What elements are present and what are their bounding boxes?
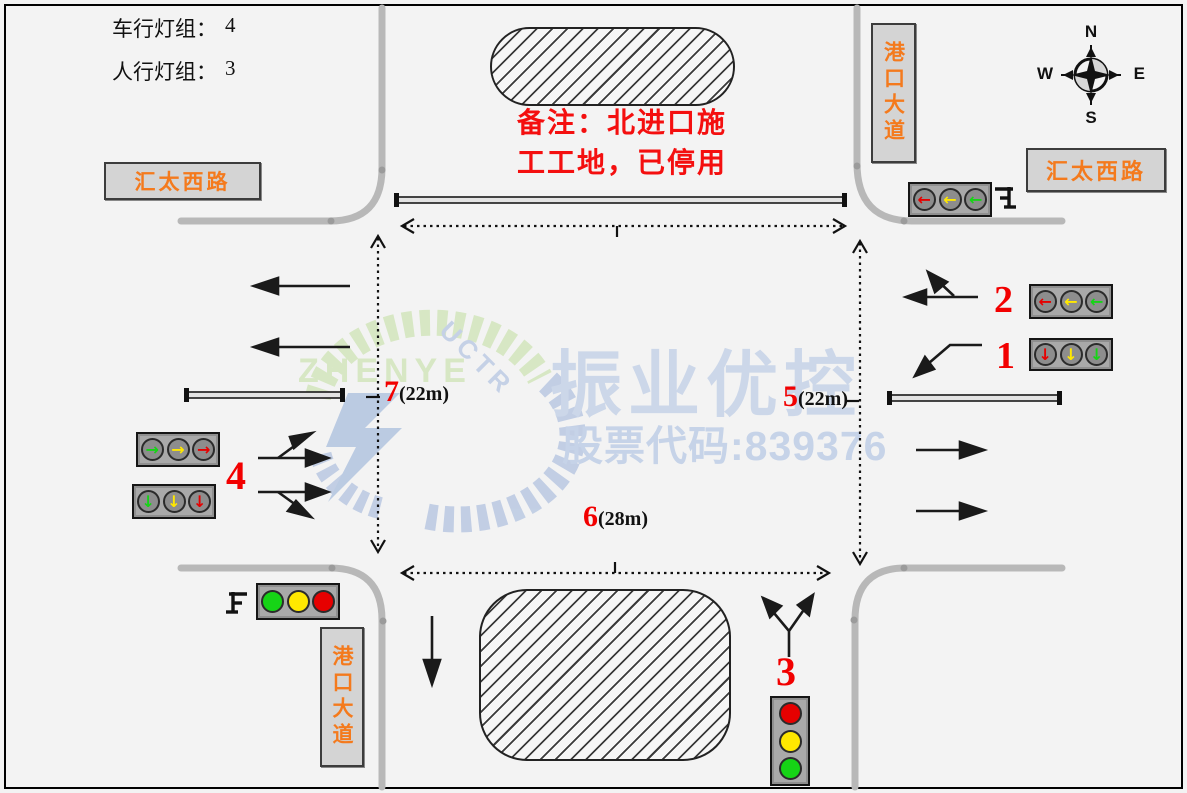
traffic-light-east-approach: ←←←	[908, 182, 992, 217]
north-construction-zone	[490, 27, 735, 106]
red-lamp	[779, 702, 802, 725]
compass-north-label: N	[1035, 22, 1147, 42]
red-lamp: ←	[913, 188, 936, 211]
red-lamp	[312, 590, 335, 613]
measure-5-dimension: (22m)	[798, 389, 848, 409]
road-label-south: 港口大道	[320, 627, 364, 767]
traffic-light-4-horizontal: →→→	[136, 432, 220, 467]
stop-line-east	[890, 395, 1060, 401]
signal-number-3: 3	[776, 648, 796, 695]
intersection-diagram: ZHENYE UCTR 振业优控 股票代码:839376	[0, 0, 1187, 793]
road-label-east: 汇太西路	[1026, 148, 1166, 192]
vehicle-light-groups-value: 4	[225, 13, 236, 43]
pedestrian-light-groups-value: 3	[225, 56, 236, 86]
note-line-2: 工工地，已停用	[452, 144, 792, 184]
green-lamp: ←	[1085, 290, 1108, 313]
green-lamp: ↓	[1085, 343, 1108, 366]
yellow-lamp	[287, 590, 310, 613]
road-label-west: 汇太西路	[104, 162, 261, 200]
yellow-lamp: ↓	[163, 490, 186, 513]
westbound-exit-arrows	[254, 278, 350, 355]
signal-pole-icon-east	[992, 183, 1018, 211]
yellow-lamp: ←	[939, 188, 962, 211]
traffic-light-south-west	[256, 583, 340, 620]
compass-rose: N S W E	[1035, 22, 1147, 128]
curb-southeast	[855, 568, 1062, 787]
vehicle-light-groups-label: 车行灯组：	[112, 13, 217, 43]
stop-line-west	[187, 392, 343, 398]
green-lamp: ↓	[137, 490, 160, 513]
measure-7-number: 7	[384, 377, 399, 407]
vehicle-light-groups-stat: 车行灯组： 4	[112, 13, 236, 43]
stop-line-north	[397, 197, 845, 203]
signal4-through-down-arrow	[258, 484, 328, 517]
green-lamp	[261, 590, 284, 613]
yellow-lamp: ←	[1060, 290, 1083, 313]
note-line-1: 备注：北进口施	[452, 104, 792, 144]
measure-5-number: 5	[783, 382, 798, 412]
yellow-lamp	[779, 730, 802, 753]
yellow-lamp: →	[167, 438, 190, 461]
construction-note: 备注：北进口施 工工地，已停用	[452, 104, 792, 184]
pedestrian-light-groups-stat: 人行灯组： 3	[112, 56, 236, 86]
measure-7-dimension: (22m)	[399, 384, 449, 404]
traffic-light-2: ←←←	[1029, 284, 1113, 319]
red-lamp: ↓	[1034, 343, 1057, 366]
signal-number-4: 4	[226, 452, 246, 499]
pedestrian-light-groups-label: 人行灯组：	[112, 56, 217, 86]
signal4-through-right-arrow	[258, 433, 328, 466]
red-lamp: →	[192, 438, 215, 461]
green-lamp: ←	[964, 188, 987, 211]
stop-lines	[184, 193, 1062, 405]
signal2-movement-arrow	[906, 272, 978, 304]
road-label-north: 港口大道	[871, 23, 916, 163]
compass-star-icon	[1059, 43, 1123, 107]
traffic-light-1: ↓↓↓	[1029, 338, 1113, 371]
red-lamp: ←	[1034, 290, 1057, 313]
signal1-movement-arrow	[915, 345, 982, 376]
signal-pole-icon-south	[224, 588, 250, 616]
measure-label-7: 7 (22m)	[384, 377, 449, 407]
traffic-light-3	[770, 696, 810, 786]
south-construction-zone	[479, 589, 731, 761]
measure-6-number: 6	[583, 502, 598, 532]
yellow-lamp: ↓	[1060, 343, 1083, 366]
eastbound-exit-arrows	[916, 442, 984, 519]
southbound-entry-arrow	[424, 616, 440, 684]
measure-label-6: 6 (28m)	[583, 502, 648, 532]
signal-number-2: 2	[994, 278, 1013, 322]
compass-south-label: S	[1035, 108, 1147, 128]
signal-number-1: 1	[996, 334, 1015, 378]
green-lamp: →	[141, 438, 164, 461]
measure-6-dimension: (28m)	[598, 509, 648, 529]
red-lamp: ↓	[188, 490, 211, 513]
measure-label-5: 5 (22m)	[783, 382, 848, 412]
compass-east-label: E	[1134, 64, 1145, 84]
green-lamp	[779, 757, 802, 780]
traffic-light-4-vertical: ↓↓↓	[132, 484, 216, 519]
compass-west-label: W	[1037, 64, 1053, 84]
